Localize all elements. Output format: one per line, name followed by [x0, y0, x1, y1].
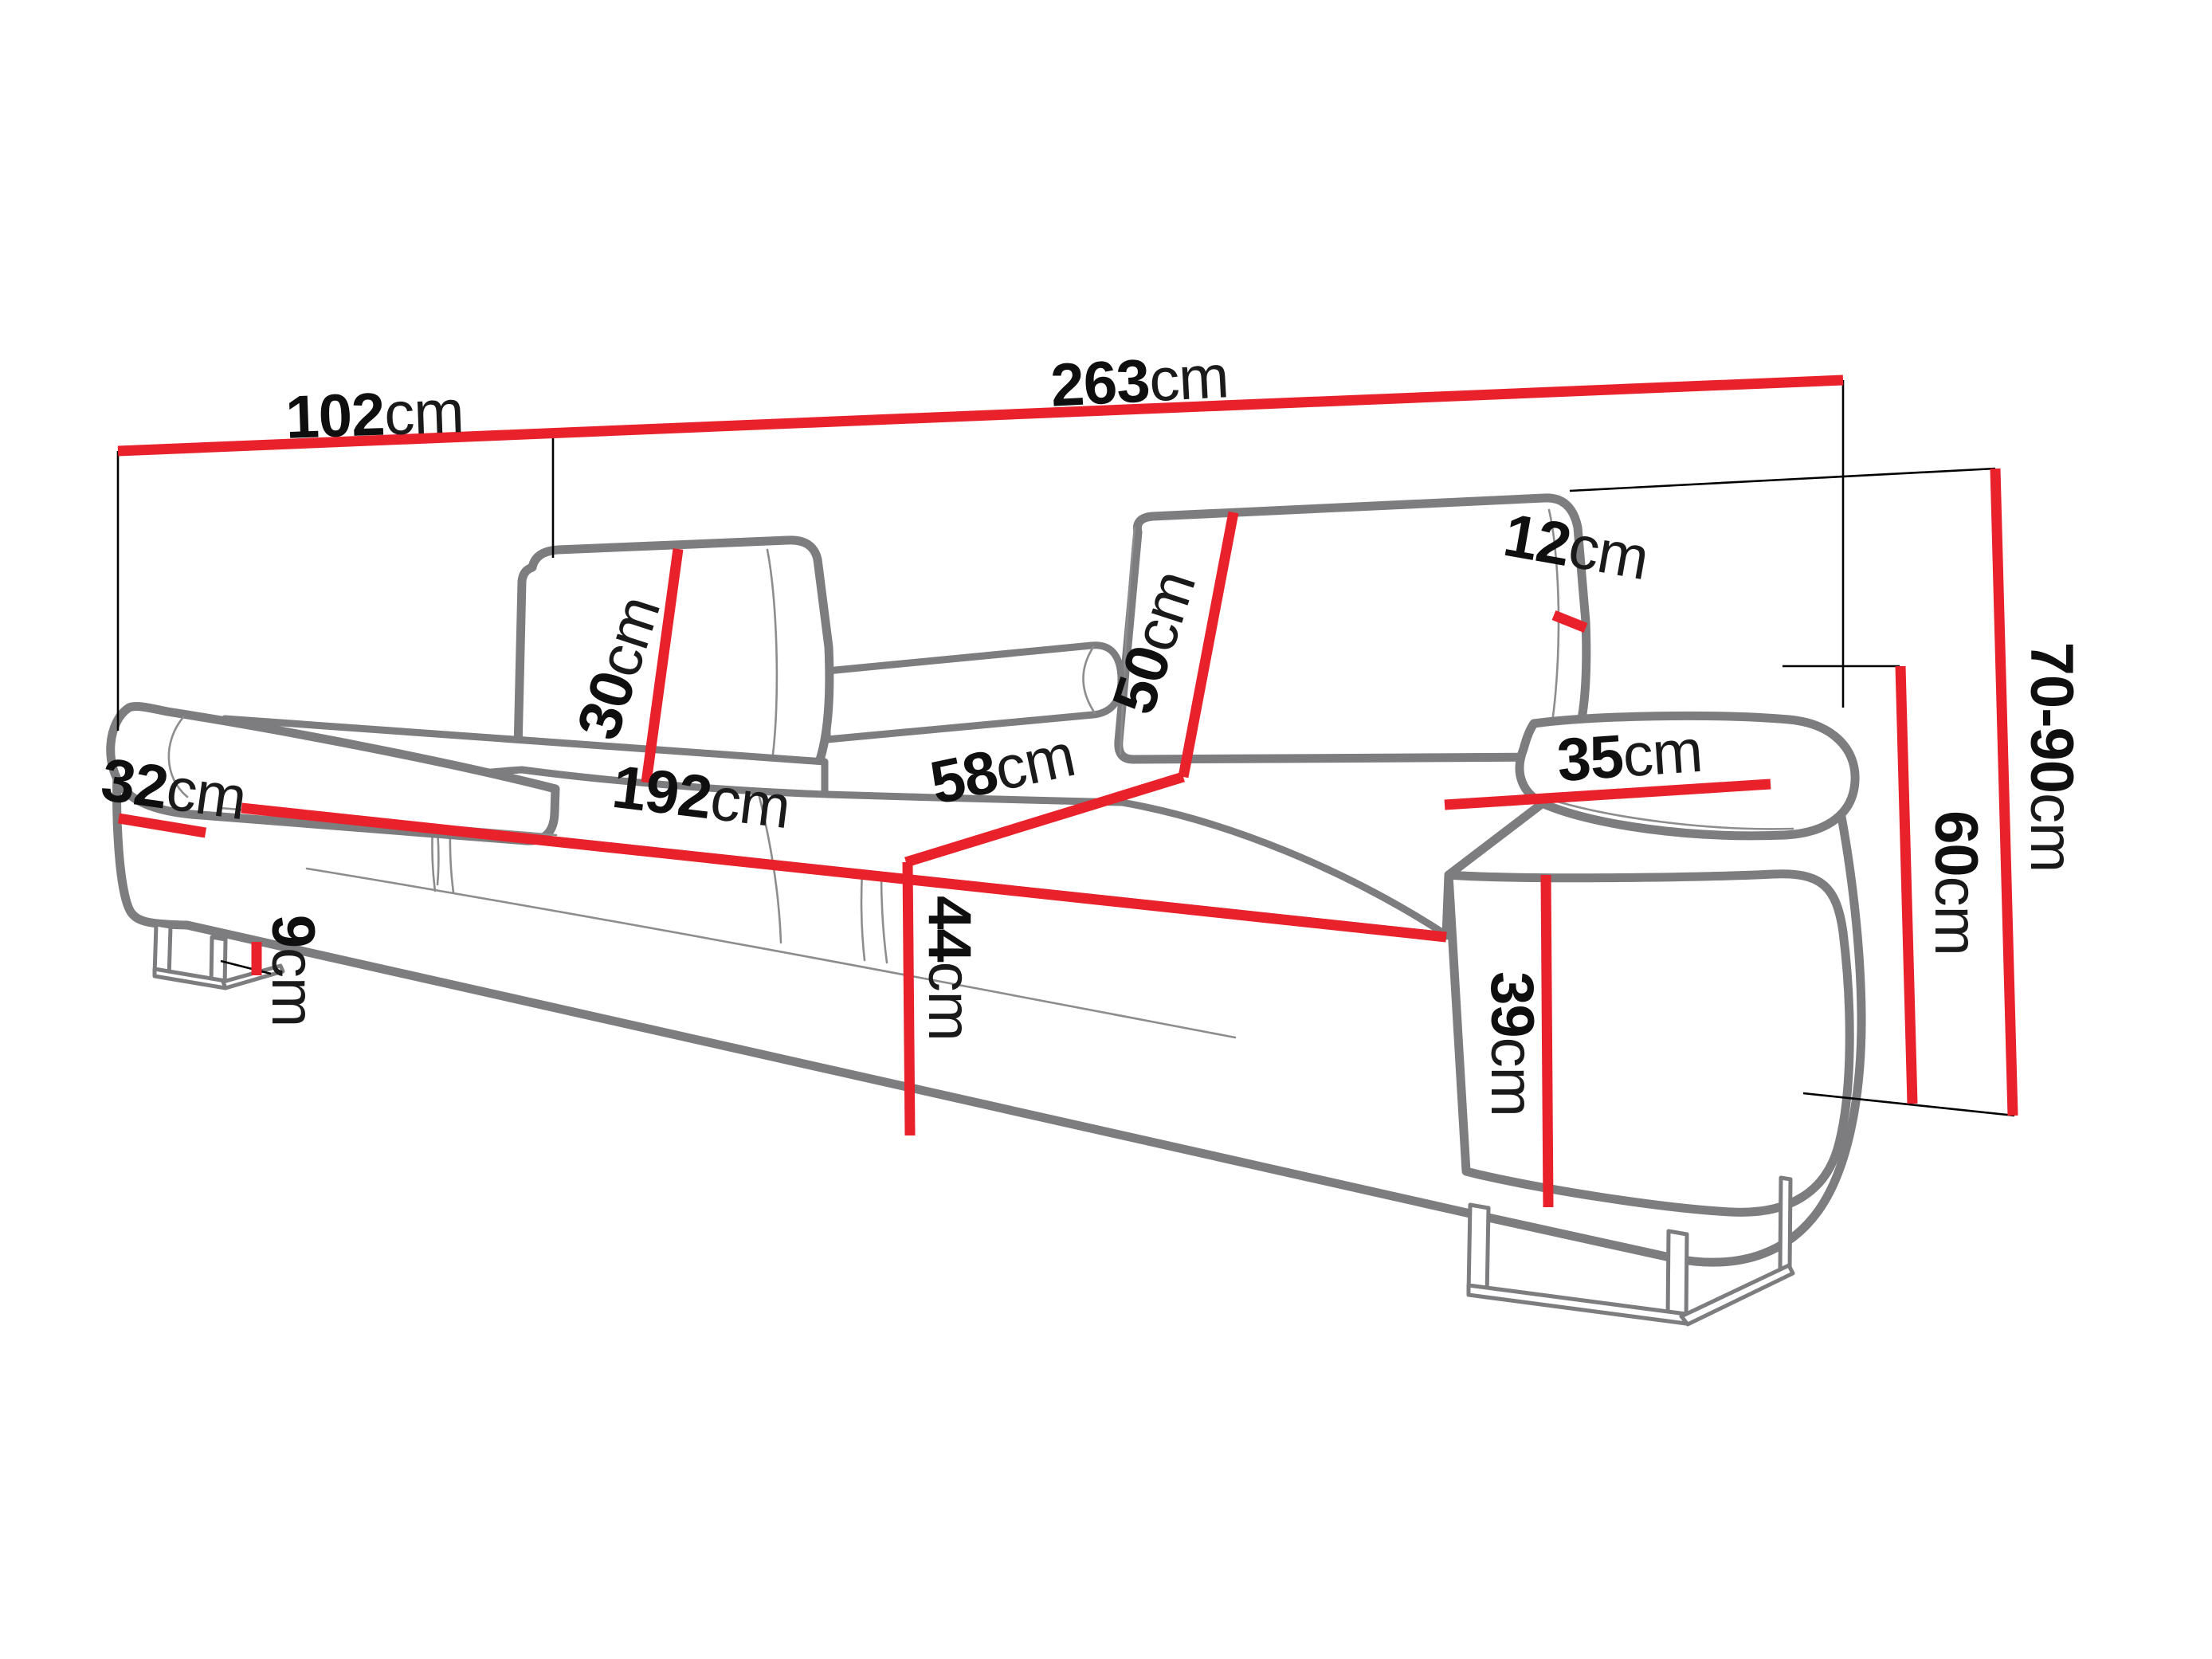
dim-label-overall-depth: 102cm [284, 378, 465, 452]
dim-value: 39 [1479, 971, 1547, 1037]
dim-unit: cm [2018, 793, 2086, 872]
dim-unit: cm [707, 764, 794, 841]
dimension-diagram: 102cm 263cm 30cm 50cm 12cm 70-90cm 32cm … [0, 0, 2212, 1659]
dim-value: 192 [609, 752, 715, 831]
dim-unit: cm [163, 755, 250, 833]
dim-value: 70-90 [2018, 642, 2086, 793]
dim-label-total-height-range: 70-90cm [2018, 642, 2086, 873]
dim-value: 32 [97, 745, 172, 822]
sofa-middle-bolster [827, 645, 1121, 739]
dim-line-seat-height [908, 862, 910, 1135]
dim-label-armrest-height: 60cm [1923, 810, 1990, 955]
dim-label-seat-height: 44cm [916, 896, 984, 1041]
dim-unit: cm [989, 721, 1081, 804]
dim-unit: cm [1621, 716, 1704, 790]
dim-label-floor-clearance: 9cm [260, 915, 327, 1027]
dim-value: 44 [916, 896, 984, 962]
dim-unit: cm [916, 962, 984, 1041]
dim-unit: cm [260, 947, 327, 1026]
dim-value: 263 [1049, 347, 1151, 419]
dim-label-armrest-front-height: 39cm [1479, 971, 1547, 1116]
dim-unit: cm [383, 378, 465, 448]
dim-label-overall-width: 263cm [1049, 343, 1230, 420]
extension-line-total-height-top [1570, 469, 1995, 491]
dim-unit: cm [1479, 1037, 1547, 1116]
dim-label-armrest-pad-width: 35cm [1555, 716, 1704, 794]
dim-unit: cm [1563, 512, 1653, 593]
dim-line-total-height-range [1995, 469, 2013, 1116]
dim-value: 9 [260, 915, 327, 947]
sofa-drawing [111, 498, 1861, 1324]
dim-value: 35 [1555, 722, 1625, 794]
dim-value: 102 [284, 380, 386, 451]
dimension-diagram-page: 102cm 263cm 30cm 50cm 12cm 70-90cm 32cm … [0, 0, 2212, 1659]
dim-unit: cm [1147, 343, 1230, 414]
dim-value: 60 [1923, 810, 1990, 877]
dim-line-armrest-height [1900, 666, 1912, 1104]
dim-value: 12 [1499, 500, 1575, 578]
dim-unit: cm [1923, 877, 1990, 955]
